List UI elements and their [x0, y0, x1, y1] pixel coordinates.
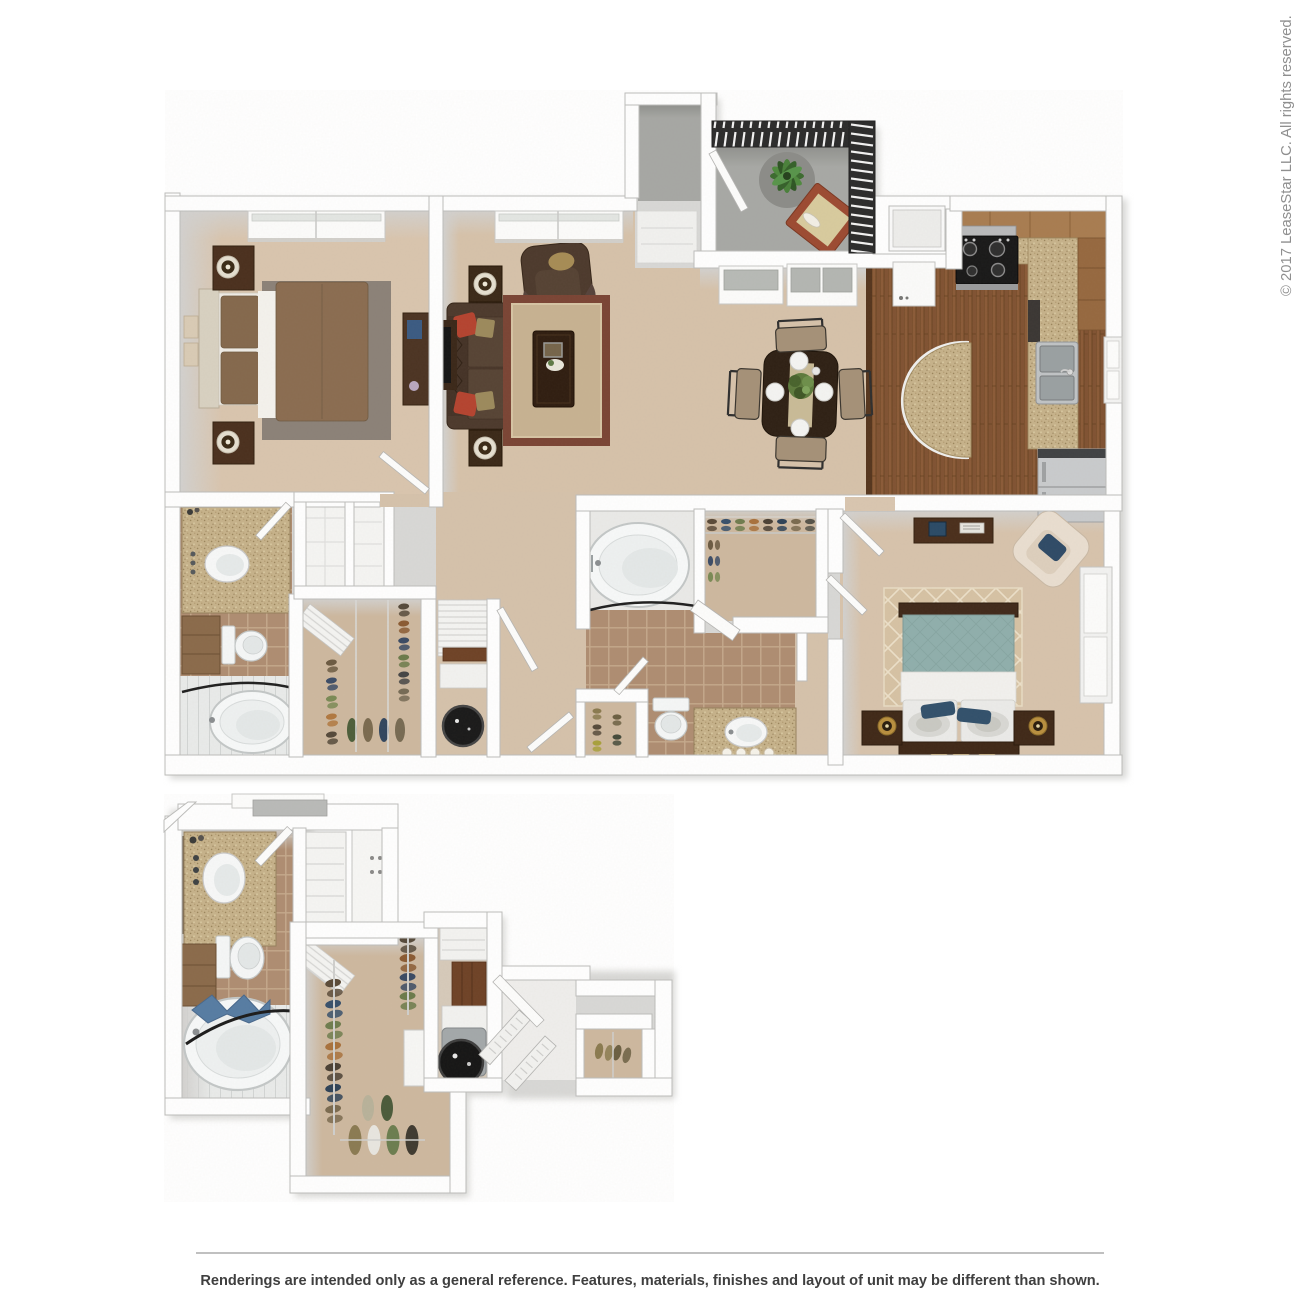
svg-text:Renderings are intended only a: Renderings are intended only as a genera…	[200, 1273, 1099, 1289]
svg-text:© 2017 LeaseStar LLC. All righ: © 2017 LeaseStar LLC. All rights reserve…	[1279, 15, 1295, 296]
